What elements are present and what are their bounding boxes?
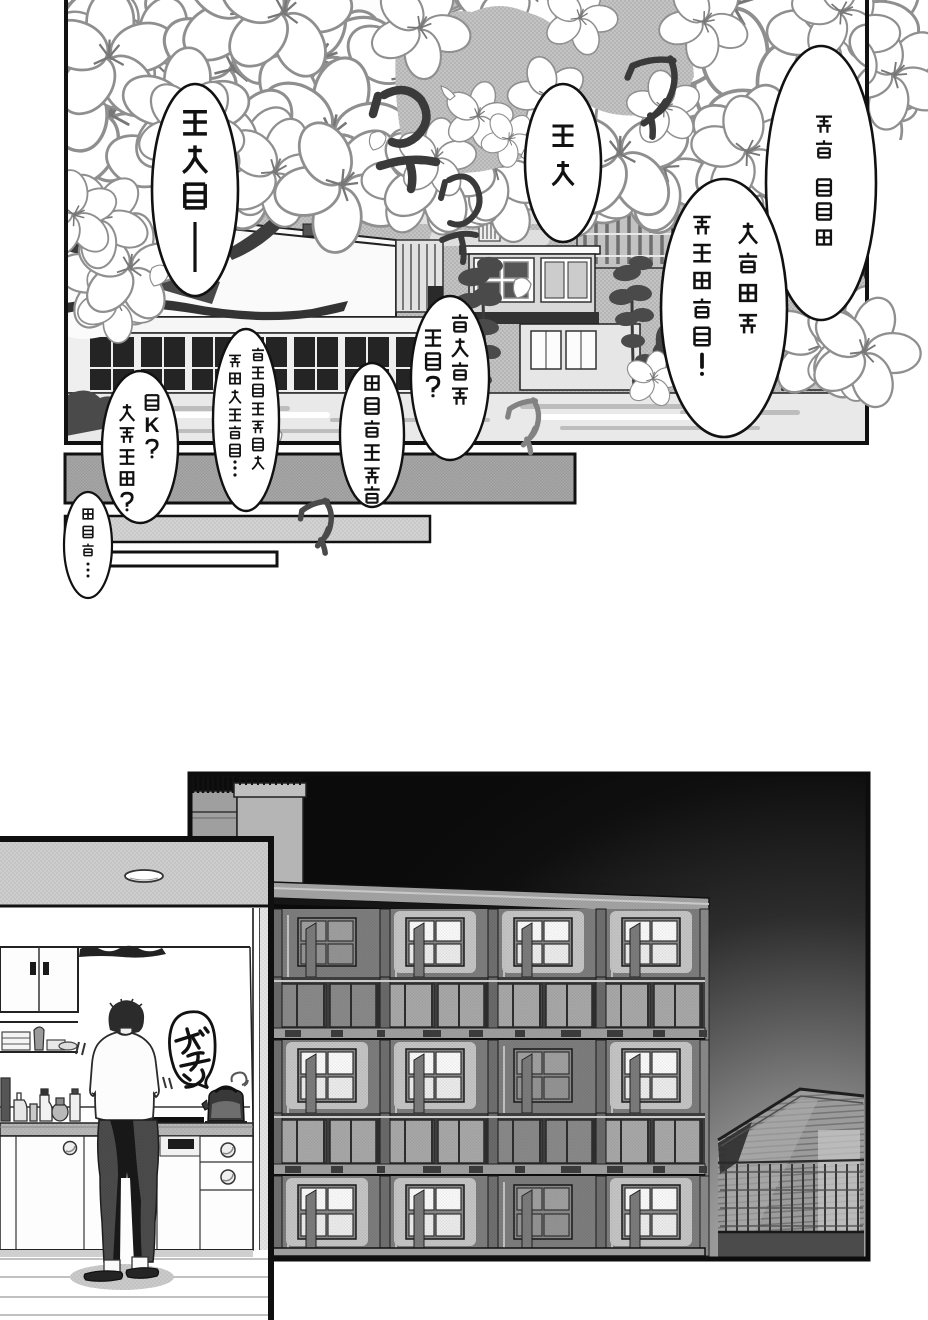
svg-text:K: K <box>144 414 159 437</box>
